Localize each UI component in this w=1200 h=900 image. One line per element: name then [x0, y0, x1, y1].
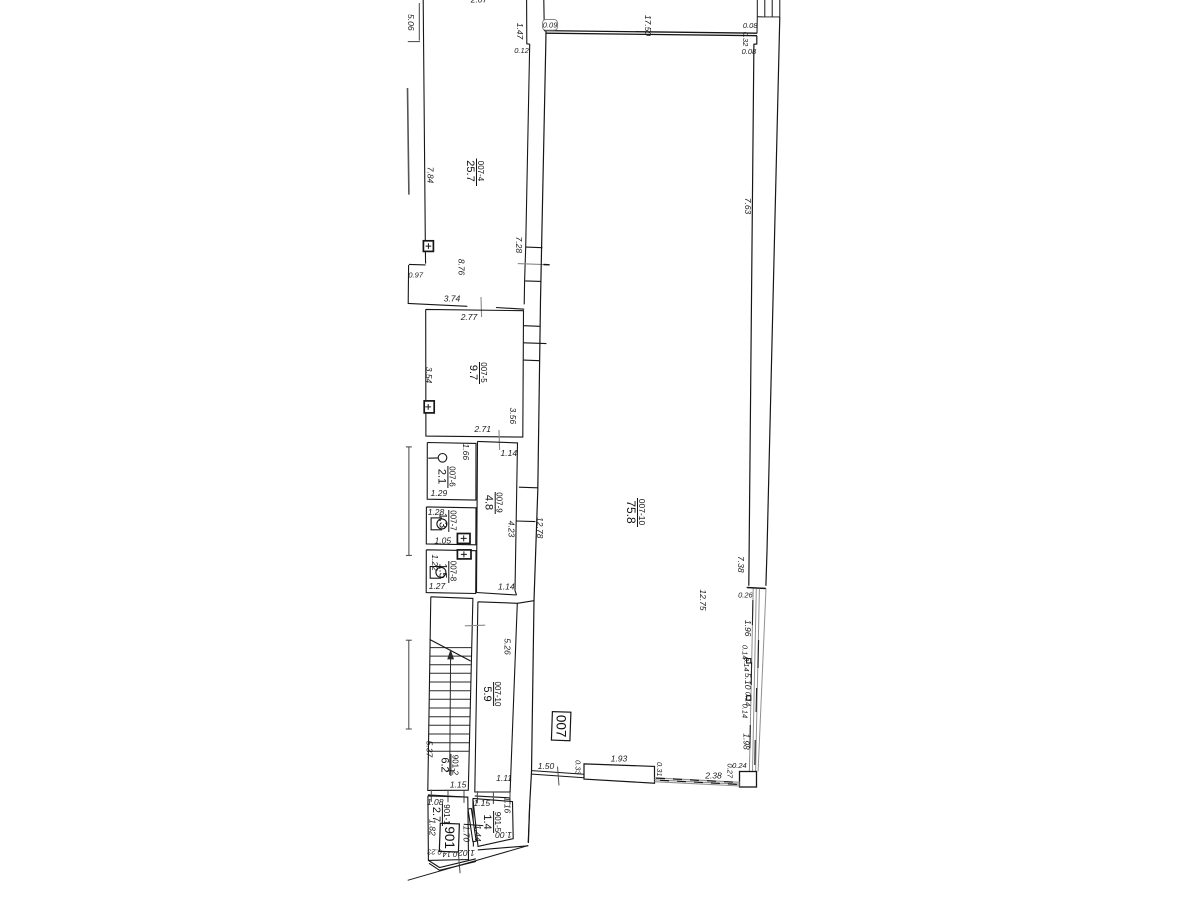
svg-text:007-4: 007-4 — [476, 161, 485, 182]
svg-text:007-7: 007-7 — [448, 510, 457, 531]
svg-text:1.27: 1.27 — [429, 581, 446, 591]
svg-text:17.50: 17.50 — [643, 15, 653, 37]
svg-text:2.7: 2.7 — [430, 807, 442, 822]
svg-text:0.26: 0.26 — [738, 591, 753, 600]
svg-text:1.50: 1.50 — [538, 761, 555, 771]
svg-text:2.38: 2.38 — [704, 770, 722, 780]
svg-text:2.77: 2.77 — [460, 312, 478, 322]
svg-text:12.75: 12.75 — [698, 589, 708, 611]
svg-text:0.09: 0.09 — [543, 20, 558, 29]
svg-text:5.06: 5.06 — [406, 14, 416, 31]
svg-text:007-6: 007-6 — [447, 466, 456, 487]
svg-text:1.66: 1.66 — [461, 444, 471, 461]
svg-text:1.05: 1.05 — [435, 535, 452, 545]
svg-text:5.10: 5.10 — [743, 673, 753, 690]
svg-text:5.37: 5.37 — [425, 741, 435, 758]
svg-text:1.5: 1.5 — [436, 563, 448, 578]
svg-text:0.08: 0.08 — [742, 47, 757, 56]
svg-text:007-5: 007-5 — [479, 362, 488, 383]
svg-text:007: 007 — [554, 715, 569, 738]
svg-text:0.97: 0.97 — [408, 271, 423, 280]
svg-text:4.23: 4.23 — [506, 521, 516, 538]
svg-text:0.08: 0.08 — [743, 21, 758, 30]
svg-text:901-2: 901-2 — [450, 755, 459, 776]
svg-text:1.11: 1.11 — [496, 773, 512, 783]
svg-text:0.23: 0.23 — [426, 848, 441, 857]
svg-text:1.14: 1.14 — [498, 582, 515, 592]
svg-text:0.31: 0.31 — [655, 762, 664, 777]
svg-text:1.16: 1.16 — [502, 797, 512, 814]
svg-text:75.8: 75.8 — [624, 500, 638, 524]
svg-text:0.27: 0.27 — [725, 763, 734, 778]
svg-text:1.70: 1.70 — [462, 826, 472, 843]
svg-text:7.84: 7.84 — [426, 167, 436, 184]
svg-text:8.76: 8.76 — [457, 259, 467, 276]
svg-text:4.8: 4.8 — [483, 495, 495, 510]
svg-text:007-9: 007-9 — [495, 492, 504, 513]
svg-text:6.2: 6.2 — [438, 757, 450, 772]
svg-text:12.78: 12.78 — [535, 517, 545, 539]
svg-text:2.71: 2.71 — [473, 424, 491, 434]
svg-text:0.14: 0.14 — [443, 850, 458, 859]
svg-text:007-10: 007-10 — [493, 682, 502, 707]
svg-text:0.14: 0.14 — [741, 704, 750, 719]
svg-text:1.15: 1.15 — [474, 798, 491, 808]
svg-text:2.1: 2.1 — [435, 469, 447, 484]
svg-text:5.26: 5.26 — [503, 638, 513, 655]
svg-text:1.96: 1.96 — [743, 620, 753, 637]
svg-text:1.14: 1.14 — [501, 448, 518, 458]
svg-text:0.14: 0.14 — [742, 657, 751, 672]
svg-text:3.74: 3.74 — [444, 294, 461, 304]
svg-text:5.9: 5.9 — [481, 686, 493, 701]
svg-text:1.29: 1.29 — [431, 488, 448, 498]
svg-text:0.12: 0.12 — [514, 46, 529, 55]
svg-text:1.93: 1.93 — [611, 753, 628, 763]
svg-text:7.63: 7.63 — [743, 198, 753, 215]
svg-text:1.98: 1.98 — [742, 733, 752, 750]
svg-text:0.32: 0.32 — [741, 32, 750, 47]
svg-text:901: 901 — [442, 826, 457, 849]
svg-text:1.02: 1.02 — [458, 848, 475, 858]
svg-text:9.7: 9.7 — [467, 365, 479, 380]
svg-text:1.47: 1.47 — [515, 23, 525, 40]
svg-text:1.4: 1.4 — [481, 814, 493, 829]
svg-text:901-1: 901-1 — [442, 804, 451, 825]
svg-text:1.3: 1.3 — [436, 513, 448, 528]
svg-text:25.7: 25.7 — [464, 160, 476, 181]
svg-text:3.54: 3.54 — [424, 367, 434, 384]
svg-text:901-5: 901-5 — [493, 812, 502, 833]
svg-text:7.38: 7.38 — [736, 556, 746, 573]
svg-text:7.28: 7.28 — [514, 237, 524, 254]
svg-text:1.15: 1.15 — [450, 779, 467, 789]
svg-text:007-8: 007-8 — [448, 561, 457, 582]
svg-text:3.56: 3.56 — [508, 408, 518, 425]
svg-text:1.08: 1.08 — [427, 797, 444, 807]
svg-text:0.33: 0.33 — [574, 760, 583, 775]
svg-text:2.07: 2.07 — [470, 0, 488, 5]
